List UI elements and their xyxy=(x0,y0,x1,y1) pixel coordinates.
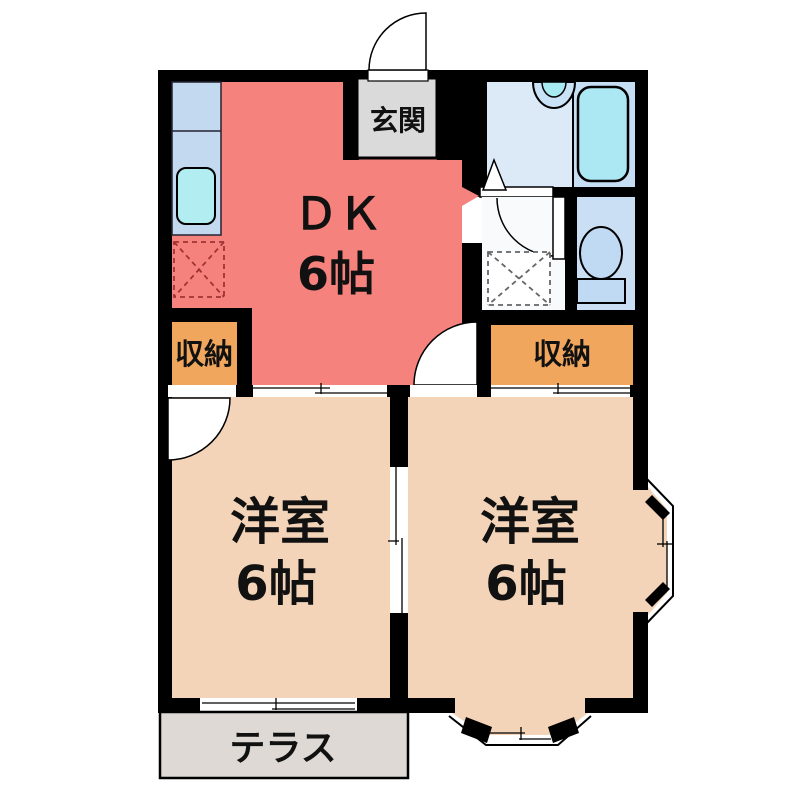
washroom xyxy=(482,197,565,310)
western-room-right-label: 洋室 xyxy=(480,493,580,551)
western-room-left-size: 6帖 xyxy=(235,556,316,612)
bathroom xyxy=(487,82,635,187)
sliding-door-dk-left-room xyxy=(253,383,387,397)
entrance-door xyxy=(368,13,428,81)
floor-plan: 収納 収納 xyxy=(0,0,800,800)
closet-right: 収納 xyxy=(462,310,648,397)
dk-size-label: 6帖 xyxy=(297,247,375,301)
dk-door-opening xyxy=(410,385,477,397)
bay-window-bottom xyxy=(449,698,591,745)
entrance-label: 玄関 xyxy=(370,104,426,137)
western-room-left-label: 洋室 xyxy=(230,493,330,551)
toilet-icon xyxy=(580,227,622,279)
dk-label: ＤＫ xyxy=(294,189,382,240)
toilet-tank xyxy=(577,279,625,303)
closet-right-label: 収納 xyxy=(533,337,591,371)
bay-window-right xyxy=(633,478,673,624)
closet-left: 収納 xyxy=(158,308,252,398)
closet-right-wall-top xyxy=(462,310,648,325)
terrace: テラス xyxy=(160,712,408,778)
closet-left-wall-right xyxy=(237,308,252,398)
floor-plan-canvas: 収納 収納 xyxy=(0,0,800,800)
kitchen-sink-icon xyxy=(177,168,215,224)
terrace-label: テラス xyxy=(229,728,336,769)
sliding-door-between-rooms xyxy=(388,467,408,613)
entrance-door-opening xyxy=(368,70,428,81)
western-room-right-size: 6帖 xyxy=(485,556,566,612)
entrance-door-arc-icon xyxy=(369,13,426,70)
washing-machine-space-icon xyxy=(488,252,550,305)
wall-dk-bathblock-upper xyxy=(462,70,487,197)
sliding-door-closet-right xyxy=(491,383,630,397)
bathtub-icon xyxy=(578,87,628,181)
washroom-door-leaf xyxy=(553,197,565,259)
closet-left-opening xyxy=(168,385,236,397)
toilet-room xyxy=(577,197,635,310)
closet-left-label: 収納 xyxy=(175,337,233,371)
kitchen-counter xyxy=(172,82,221,235)
